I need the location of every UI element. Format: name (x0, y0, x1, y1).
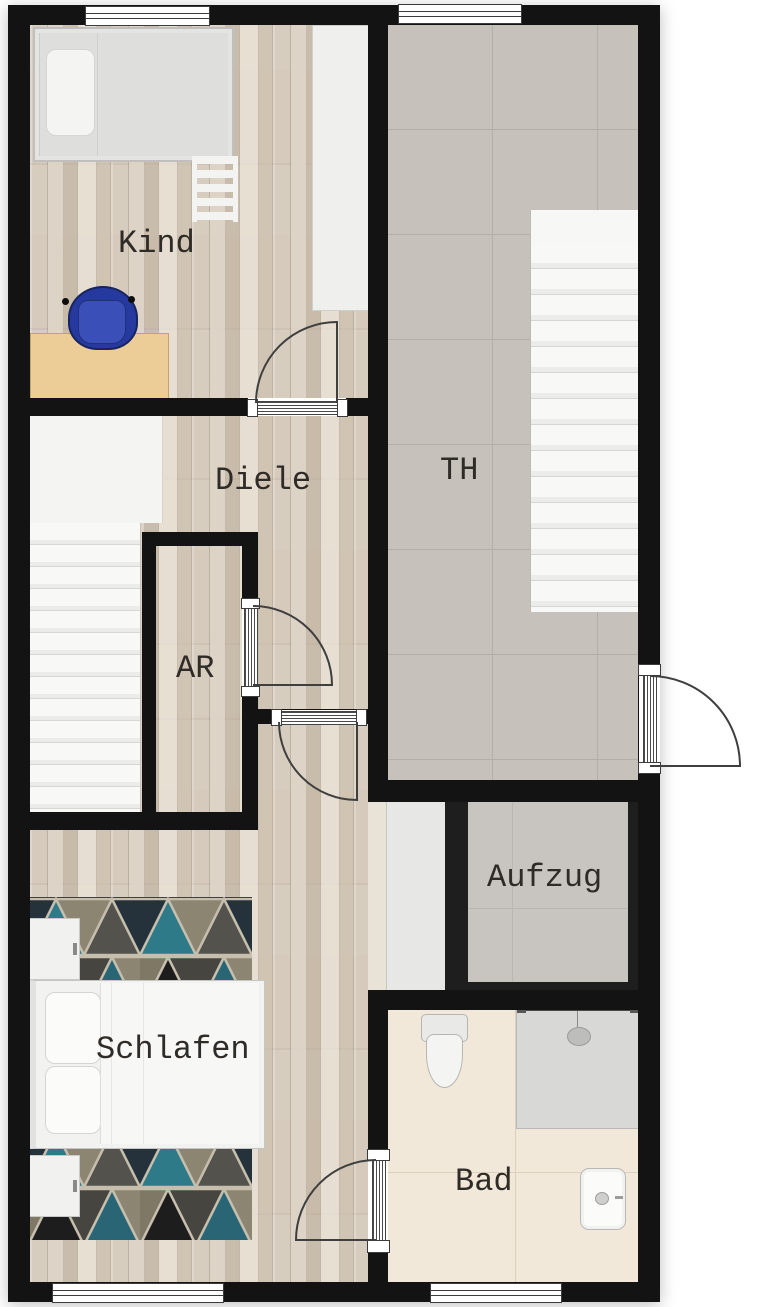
staircase-left (30, 523, 141, 812)
wall-stairs-south (8, 812, 253, 830)
door-bad-swing (294, 1158, 380, 1244)
room-label-th: TH (440, 455, 478, 487)
door-hall-swing (278, 720, 362, 804)
nightstand-handle (73, 1180, 77, 1192)
pillow (46, 49, 95, 136)
toilet (421, 1014, 469, 1088)
shower-head (567, 1027, 591, 1046)
chair-seat (78, 300, 126, 344)
nightstand-handle (73, 943, 77, 955)
wall-ar-north (142, 532, 258, 546)
chair-armrest-left (62, 298, 69, 305)
room-label-schlafen: Schlafen (96, 1034, 250, 1066)
floor-plan: Kind Diele AR TH Aufzug Schlafen Bad (0, 0, 779, 1307)
door-entrance-swing (648, 674, 746, 770)
wall-right (638, 5, 660, 1302)
single-bed (33, 27, 234, 162)
floor-nook (368, 802, 388, 990)
shower (516, 1002, 644, 1129)
window-kind (85, 6, 210, 26)
room-label-ar: AR (176, 653, 214, 685)
door-kind-swing (255, 318, 341, 406)
staircase-th-treads (531, 243, 638, 612)
desk-chair (62, 284, 138, 348)
pillow-top (45, 992, 101, 1064)
nightstand-bottom (28, 1155, 80, 1217)
staircase-left-landing (30, 416, 163, 523)
room-label-diele: Diele (215, 465, 311, 497)
door-ar-swing (252, 604, 336, 690)
wall-left (8, 5, 30, 1302)
wall-shelf (312, 25, 370, 311)
room-label-aufzug: Aufzug (487, 862, 602, 894)
wall-th-south (368, 780, 660, 802)
window-bad (430, 1283, 562, 1303)
wardrobe (386, 800, 448, 992)
faucet (595, 1192, 609, 1205)
staircase-th (530, 210, 638, 612)
toilet-bowl (426, 1034, 463, 1088)
pillow-bottom (45, 1066, 101, 1134)
wall-bad-north (373, 990, 660, 1010)
duvet-fold (97, 33, 98, 156)
wall-ar-west (142, 532, 156, 830)
room-label-kind: Kind (118, 228, 195, 260)
faucet-spout (615, 1196, 623, 1199)
window-th (398, 4, 522, 24)
sink (580, 1168, 626, 1230)
window-schlafen (52, 1283, 224, 1303)
chair-armrest-right (128, 296, 135, 303)
room-label-bad: Bad (455, 1166, 513, 1198)
wall-bad-west (368, 990, 388, 1302)
bunk-ladder (192, 156, 238, 222)
nightstand-top (28, 918, 80, 980)
